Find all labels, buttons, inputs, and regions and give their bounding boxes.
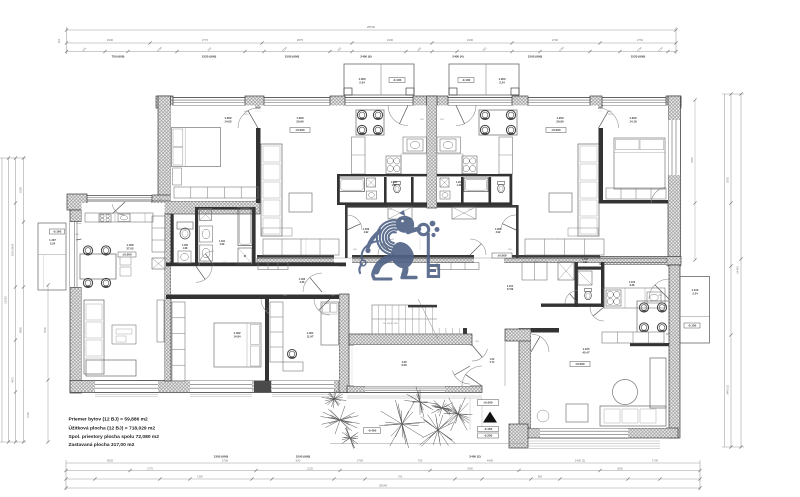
- svg-text:5505: 5505: [726, 177, 730, 183]
- svg-text:2700: 2700: [26, 412, 30, 418]
- svg-text:27.02: 27.02: [127, 246, 134, 250]
- svg-text:2400 (4): 2400 (4): [452, 55, 463, 59]
- svg-text:3600: 3600: [617, 466, 623, 470]
- svg-text:4400: 4400: [487, 459, 494, 463]
- svg-text:Zastavaná plocha 317,00 m2: Zastavaná plocha 317,00 m2: [69, 442, 135, 448]
- svg-text:1970: 1970: [608, 114, 614, 116]
- svg-text:-0.150: -0.150: [484, 427, 493, 431]
- svg-text:Priemer bytov (12 BJ) = 59,886: Priemer bytov (12 BJ) = 59,886 m2: [69, 417, 149, 423]
- svg-text:±0.000: ±0.000: [497, 254, 506, 258]
- svg-text:700: 700: [418, 459, 423, 463]
- svg-text:2400 (2): 2400 (2): [575, 459, 585, 463]
- svg-text:750 (900): 750 (900): [112, 55, 125, 59]
- svg-text:14.84: 14.84: [234, 334, 241, 338]
- svg-text:2400: 2400: [467, 466, 473, 470]
- svg-text:2.36: 2.36: [300, 281, 305, 284]
- svg-text:4.92: 4.92: [364, 231, 369, 234]
- svg-text:1550 (900): 1550 (900): [11, 244, 15, 257]
- svg-text:700: 700: [398, 475, 403, 479]
- svg-text:±0.000: ±0.000: [122, 253, 131, 257]
- svg-text:13530: 13530: [4, 296, 8, 304]
- svg-text:1350: 1350: [197, 475, 203, 479]
- svg-text:29.90: 29.90: [556, 120, 564, 124]
- svg-text:-0.100: -0.100: [393, 78, 402, 82]
- svg-text:6.08: 6.08: [401, 363, 407, 367]
- svg-text:2125: 2125: [307, 466, 313, 470]
- svg-text:Úžitková plocha (12 BJ) = 718,: Úžitková plocha (12 BJ) = 718,029 m2: [69, 425, 156, 432]
- svg-text:1300 (900): 1300 (900): [214, 455, 229, 459]
- svg-text:±0.000: ±0.000: [483, 401, 492, 405]
- svg-text:±0.000: ±0.000: [295, 128, 304, 132]
- svg-text:1700: 1700: [652, 459, 659, 463]
- svg-text:14.02: 14.02: [224, 120, 232, 124]
- svg-text:1.98: 1.98: [183, 247, 188, 250]
- svg-text:9.38: 9.38: [630, 284, 635, 287]
- svg-text:17x 155,8 / 280: 17x 155,8 / 280: [382, 323, 398, 325]
- svg-text:2775: 2775: [147, 466, 153, 470]
- svg-text:2875: 2875: [297, 38, 304, 42]
- svg-text:2700: 2700: [357, 459, 364, 463]
- svg-text:14430: 14430: [736, 266, 740, 274]
- svg-text:2754: 2754: [637, 38, 644, 42]
- svg-text:2.24: 2.24: [359, 80, 365, 84]
- svg-text:200: 200: [57, 38, 61, 43]
- svg-text:-0.100: -0.100: [462, 78, 471, 82]
- svg-text:2770: 2770: [202, 38, 209, 42]
- svg-text:2400 (2): 2400 (2): [469, 455, 480, 459]
- svg-text:4.92: 4.92: [496, 231, 501, 234]
- svg-text:3.24: 3.24: [50, 241, 56, 245]
- svg-text:2400: 2400: [387, 38, 394, 42]
- svg-text:2700: 2700: [222, 459, 229, 463]
- svg-text:2.74: 2.74: [490, 361, 495, 364]
- svg-text:1520 (900): 1520 (900): [631, 55, 646, 59]
- svg-text:4470: 4470: [11, 377, 15, 383]
- svg-text:3443 (5): 3443 (5): [726, 385, 730, 395]
- svg-text:25540: 25540: [367, 25, 376, 29]
- svg-text:830: 830: [296, 459, 301, 463]
- svg-text:-0.100: -0.100: [688, 324, 697, 328]
- svg-text:-0.200: -0.200: [484, 434, 493, 438]
- svg-text:5050: 5050: [44, 327, 47, 333]
- svg-text:2.89: 2.89: [220, 243, 225, 246]
- svg-text:-0.450: -0.450: [368, 429, 377, 433]
- svg-text:2700: 2700: [552, 38, 559, 42]
- svg-text:1500 (900): 1500 (900): [296, 455, 311, 459]
- svg-text:2900: 2900: [107, 38, 114, 42]
- svg-text:2400 (6): 2400 (6): [360, 55, 371, 59]
- svg-text:1.20: 1.20: [457, 184, 462, 187]
- svg-text:2.24: 2.24: [499, 80, 505, 84]
- svg-text:±0.000: ±0.000: [551, 128, 560, 132]
- svg-text:860: 860: [538, 475, 543, 479]
- svg-text:1500 (900): 1500 (900): [285, 55, 300, 59]
- svg-text:1800: 1800: [19, 187, 23, 193]
- svg-text:1500 (900): 1500 (900): [528, 55, 543, 59]
- svg-text:11.97: 11.97: [307, 334, 314, 338]
- svg-text:17.69: 17.69: [507, 287, 514, 291]
- svg-text:1970: 1970: [244, 114, 250, 116]
- svg-text:Spol. priestory plocha spolu 7: Spol. priestory plocha spolu 72,080 m2: [69, 434, 160, 440]
- svg-text:29.90: 29.90: [296, 120, 304, 124]
- svg-text:25540: 25540: [379, 484, 388, 488]
- svg-text:9025: 9025: [107, 459, 114, 463]
- svg-text:5505: 5505: [691, 157, 694, 163]
- svg-text:±0.000: ±0.000: [575, 362, 584, 366]
- svg-text:2400: 2400: [467, 38, 474, 42]
- svg-text:2.24: 2.24: [692, 291, 698, 295]
- svg-text:14.16: 14.16: [629, 120, 637, 124]
- svg-text:1.20: 1.20: [392, 184, 397, 187]
- svg-text:6850: 6850: [19, 327, 23, 333]
- svg-text:-0.160: -0.160: [53, 230, 62, 234]
- svg-text:1520 (900): 1520 (900): [202, 55, 217, 59]
- svg-text:40.47: 40.47: [583, 350, 590, 354]
- svg-text:4.92: 4.92: [583, 261, 588, 264]
